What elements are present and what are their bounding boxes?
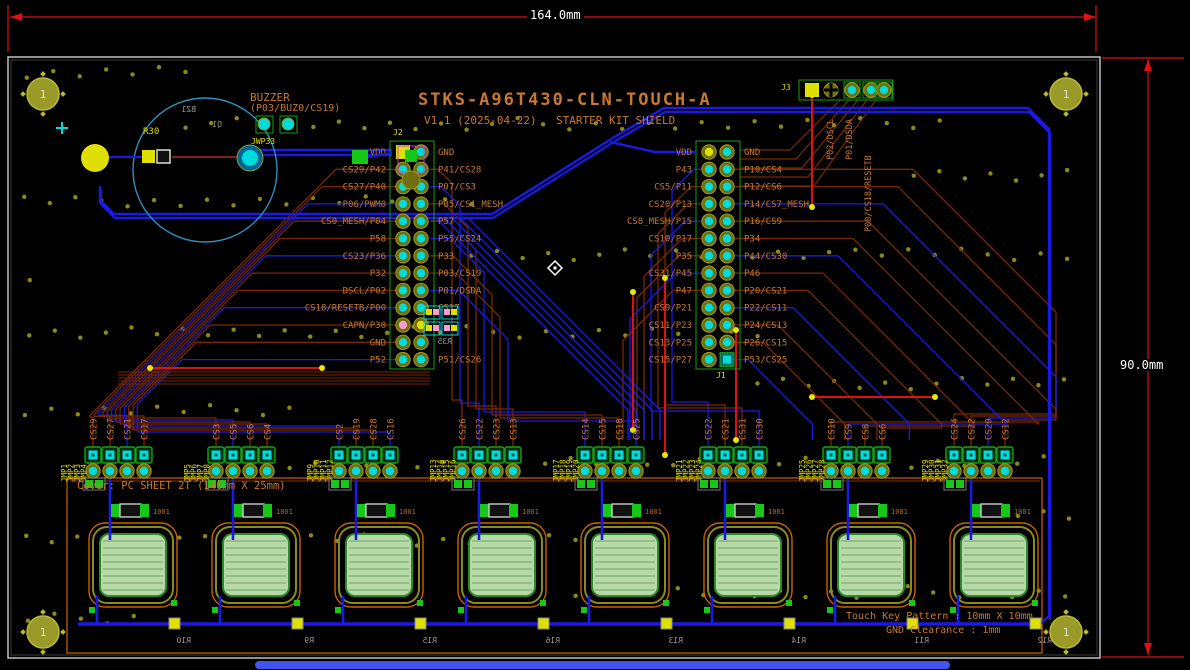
- pin-label: P44/CS30: [744, 252, 787, 262]
- cs-channel-label: CS12: [1002, 418, 1012, 440]
- hole-number: 1: [40, 626, 47, 639]
- pin-label: P01/DSDA: [438, 286, 482, 296]
- pin-label: P34: [744, 235, 760, 245]
- jumper-label: JMP16: [449, 459, 458, 482]
- jumper-label: JMP28: [818, 459, 827, 482]
- refdes-q1: Q1: [212, 120, 222, 129]
- refdes-bottom-resistor: R12: [1037, 636, 1052, 645]
- refdes-bz1: BZ1: [181, 105, 196, 114]
- cs-channel-label: CS19: [353, 418, 363, 440]
- cs-channel-label: CS31: [739, 418, 749, 440]
- cs-channel-label: CS22: [476, 418, 486, 440]
- pin-label: P35: [676, 252, 692, 262]
- pin-label: P51/CS26: [438, 356, 481, 366]
- pin-label: DSCL/P02: [343, 286, 386, 296]
- pin-label: CS11/P23: [649, 321, 692, 331]
- refdes-bottom-resistor: R14: [791, 636, 806, 645]
- pin-label: CS23/P36: [343, 252, 386, 262]
- pin-label: GND: [438, 148, 454, 158]
- svg-text:1001: 1001: [645, 508, 662, 516]
- buzzer-label: BUZZER: [250, 92, 290, 103]
- touch-pad[interactable]: [212, 523, 300, 613]
- jumper-label: JMP20: [572, 459, 581, 482]
- pin-label: CS18/RESETB/P00: [305, 304, 386, 314]
- jumper-label: JMP32: [941, 459, 950, 482]
- cs-channel-label: CS8: [862, 424, 872, 440]
- touch-pad[interactable]: [458, 523, 546, 613]
- horizontal-scrollbar[interactable]: [255, 661, 950, 669]
- pin-label: CAPN/P30: [343, 321, 386, 331]
- svg-text:1001: 1001: [891, 508, 908, 516]
- pin-label: CS10/P17: [649, 235, 692, 245]
- pin-label: CS9/P21: [654, 304, 692, 314]
- cs-channel-label: CS29: [90, 418, 100, 440]
- editor-cursor: [548, 261, 562, 275]
- pin-label: P32: [370, 269, 386, 279]
- cs-channel-label: CS21: [722, 418, 732, 440]
- pin-label: CS0_MESH/P04: [321, 217, 386, 227]
- pin-label: P24/CS13: [744, 321, 787, 331]
- board-subtitle: STARTER KIT SHIELD: [556, 115, 675, 126]
- cs-channel-label: CS22: [705, 418, 715, 440]
- svg-text:1001: 1001: [276, 508, 293, 516]
- refdes-bottom-resistor: R16: [545, 636, 560, 645]
- cs-channel-label: CS15: [599, 418, 609, 440]
- svg-text:P01/DSDA: P01/DSDA: [845, 119, 855, 160]
- pin-label: P52: [370, 356, 386, 366]
- pin-label: CS20/P13: [649, 200, 692, 210]
- pin-label: P06/PWM0: [343, 200, 386, 210]
- jumper-group[interactable]: CS26JMP13CS22JMP14CS23JMP15CS13JMP16: [429, 418, 521, 482]
- pin-label: CS13/P25: [649, 338, 692, 348]
- svg-text:1001: 1001: [768, 508, 785, 516]
- touch-pad[interactable]: [704, 523, 792, 613]
- refdes-bottom-resistor: R13: [668, 636, 683, 645]
- refdes-bottom-resistor: R15: [422, 636, 437, 645]
- pcb-editor-canvas[interactable]: VDDGNDCS29/P42P41/CS28CS27/P40P07/CS3P06…: [0, 0, 1190, 670]
- svg-text:1001: 1001: [1014, 508, 1031, 516]
- pin-label: P57: [438, 217, 454, 227]
- refdes-bottom-resistor: R9: [304, 636, 314, 645]
- svg-text:1001: 1001: [522, 508, 539, 516]
- touch-pad[interactable]: [827, 523, 915, 613]
- pin-label: VDD: [676, 148, 692, 158]
- pin-label: P10/CS4: [744, 165, 782, 175]
- cs-channel-label: CS13: [510, 418, 520, 440]
- jumper-jwp33-label: JWP33: [251, 138, 275, 146]
- pin-label: P58: [370, 235, 386, 245]
- cs-channel-label: CS25: [633, 418, 643, 440]
- refdes-j1: J1: [716, 372, 726, 380]
- cs-channel-label: CS22: [968, 418, 978, 440]
- cs-channel-label: CS24: [951, 418, 961, 440]
- touch-key-note: Touch Key Pattern : 10mm X 10mm: [846, 612, 1033, 622]
- touch-pad[interactable]: [581, 523, 669, 613]
- cs-channel-label: CS23: [493, 418, 503, 440]
- pin-label: CS31/P45: [649, 269, 692, 279]
- dimension-width: 164.0mm: [527, 9, 584, 21]
- svg-text:P02/DSCL: P02/DSCL: [826, 119, 836, 160]
- touch-pad[interactable]: [950, 523, 1038, 613]
- pin-label: P33: [438, 252, 454, 262]
- pin-label: P20/CS21: [744, 286, 787, 296]
- pin-label: CS27/P40: [343, 183, 386, 193]
- cs-channel-label: CS6: [247, 424, 257, 440]
- cs-channel-label: CS18: [616, 418, 626, 440]
- hole-number: 1: [1063, 626, 1070, 639]
- cover-note: Cover: PC SHEET 2T (140mm X 25mm): [77, 481, 286, 492]
- pin-label: P47: [676, 286, 692, 296]
- cs-channel-label: CS5: [230, 424, 240, 440]
- cs-channel-label: CS16: [387, 418, 397, 440]
- refdes-bottom-resistor: R10: [176, 636, 191, 645]
- pin-label: P26/CS15: [744, 338, 787, 348]
- cs-channel-label: CS26: [459, 418, 469, 440]
- touch-pad[interactable]: [89, 523, 177, 613]
- cs-channel-label: CS28: [370, 418, 380, 440]
- pin-label: CS15/P27: [649, 356, 692, 366]
- pin-label: CS8_MESH/P15: [627, 217, 692, 227]
- pin-label: GND: [370, 338, 386, 348]
- svg-text:P00/CS18/RESETB: P00/CS18/RESETB: [864, 155, 874, 232]
- cs-channel-label: CS30: [756, 418, 766, 440]
- refdes-j3: J3: [781, 84, 791, 92]
- connector-j1[interactable]: VDDGNDP43P10/CS4CS5/P11P12/CS6CS20/P13P1…: [627, 141, 809, 369]
- hole-number: 1: [40, 88, 47, 101]
- cs-channel-label: CS2: [336, 424, 346, 440]
- refdes-j2: J2: [393, 129, 403, 137]
- cs-channel-label: CS27: [107, 418, 117, 440]
- pin-label: CS29/P42: [343, 165, 386, 175]
- refdes-bottom-resistor: R11: [914, 636, 929, 645]
- pin-label: P07/CS3: [438, 183, 476, 193]
- mounting-holes: 1111: [20, 71, 1089, 655]
- svg-text:1001: 1001: [153, 508, 170, 516]
- cs-channel-label: CS4: [264, 424, 274, 440]
- cs-channel-label: CS3: [213, 424, 223, 440]
- cs-channel-label: CS9: [845, 424, 855, 440]
- svg-text:1001: 1001: [399, 508, 416, 516]
- pin-label: P03/CS19: [438, 269, 481, 279]
- pin-label: P55/CS24: [438, 235, 481, 245]
- board-title: STKS-A96T430-CLN-TOUCH-A: [418, 92, 712, 109]
- pin-label: P12/CS6: [744, 183, 782, 193]
- cs-channel-label: CS6: [879, 424, 889, 440]
- pin-label: P43: [676, 165, 692, 175]
- jumper-label: JMP24: [695, 459, 704, 482]
- touch-pads[interactable]: [89, 523, 1038, 613]
- jumper-label: JMP12: [326, 459, 335, 482]
- pin-label: P22/CS11: [744, 304, 787, 314]
- pin-label: P53/CS25: [744, 356, 787, 366]
- touch-pad[interactable]: [335, 523, 423, 613]
- pin-label: P14/CS7_MESH: [744, 200, 809, 210]
- buzzer-pad: [81, 144, 109, 172]
- buzzer-pin-note: (P03/BUZ0/CS19): [250, 104, 340, 114]
- refdes-r30: R30: [143, 127, 159, 137]
- cs-channel-label: CS17: [141, 418, 151, 440]
- pin-label: P46: [744, 269, 760, 279]
- pin-label: P41/CS28: [438, 165, 481, 175]
- pin-label: P05/CS1_MESH: [438, 200, 503, 210]
- board-version: V1.1 (2025-04-22): [424, 115, 537, 126]
- hole-number: 1: [1063, 88, 1070, 101]
- pin-label: GND: [744, 148, 760, 158]
- cs-channel-label: CS14: [582, 418, 592, 440]
- dimension-height: 90.0mm: [1117, 359, 1166, 371]
- refdes-r35: R35: [437, 337, 452, 346]
- cs-channel-label: CS20: [985, 418, 995, 440]
- cs-channel-label: CS10: [828, 418, 838, 440]
- pin-label: CS5/P11: [654, 183, 692, 193]
- gnd-clearance-note: GND Clearance : 1mm: [886, 626, 1000, 636]
- cs-channel-label: CS21: [124, 418, 134, 440]
- jumper-group[interactable]: CS22JMP21CS21JMP22CS31JMP23CS30JMP24: [675, 418, 767, 482]
- copper-traces: [90, 100, 1056, 448]
- pin-label: P16/CS9: [744, 217, 782, 227]
